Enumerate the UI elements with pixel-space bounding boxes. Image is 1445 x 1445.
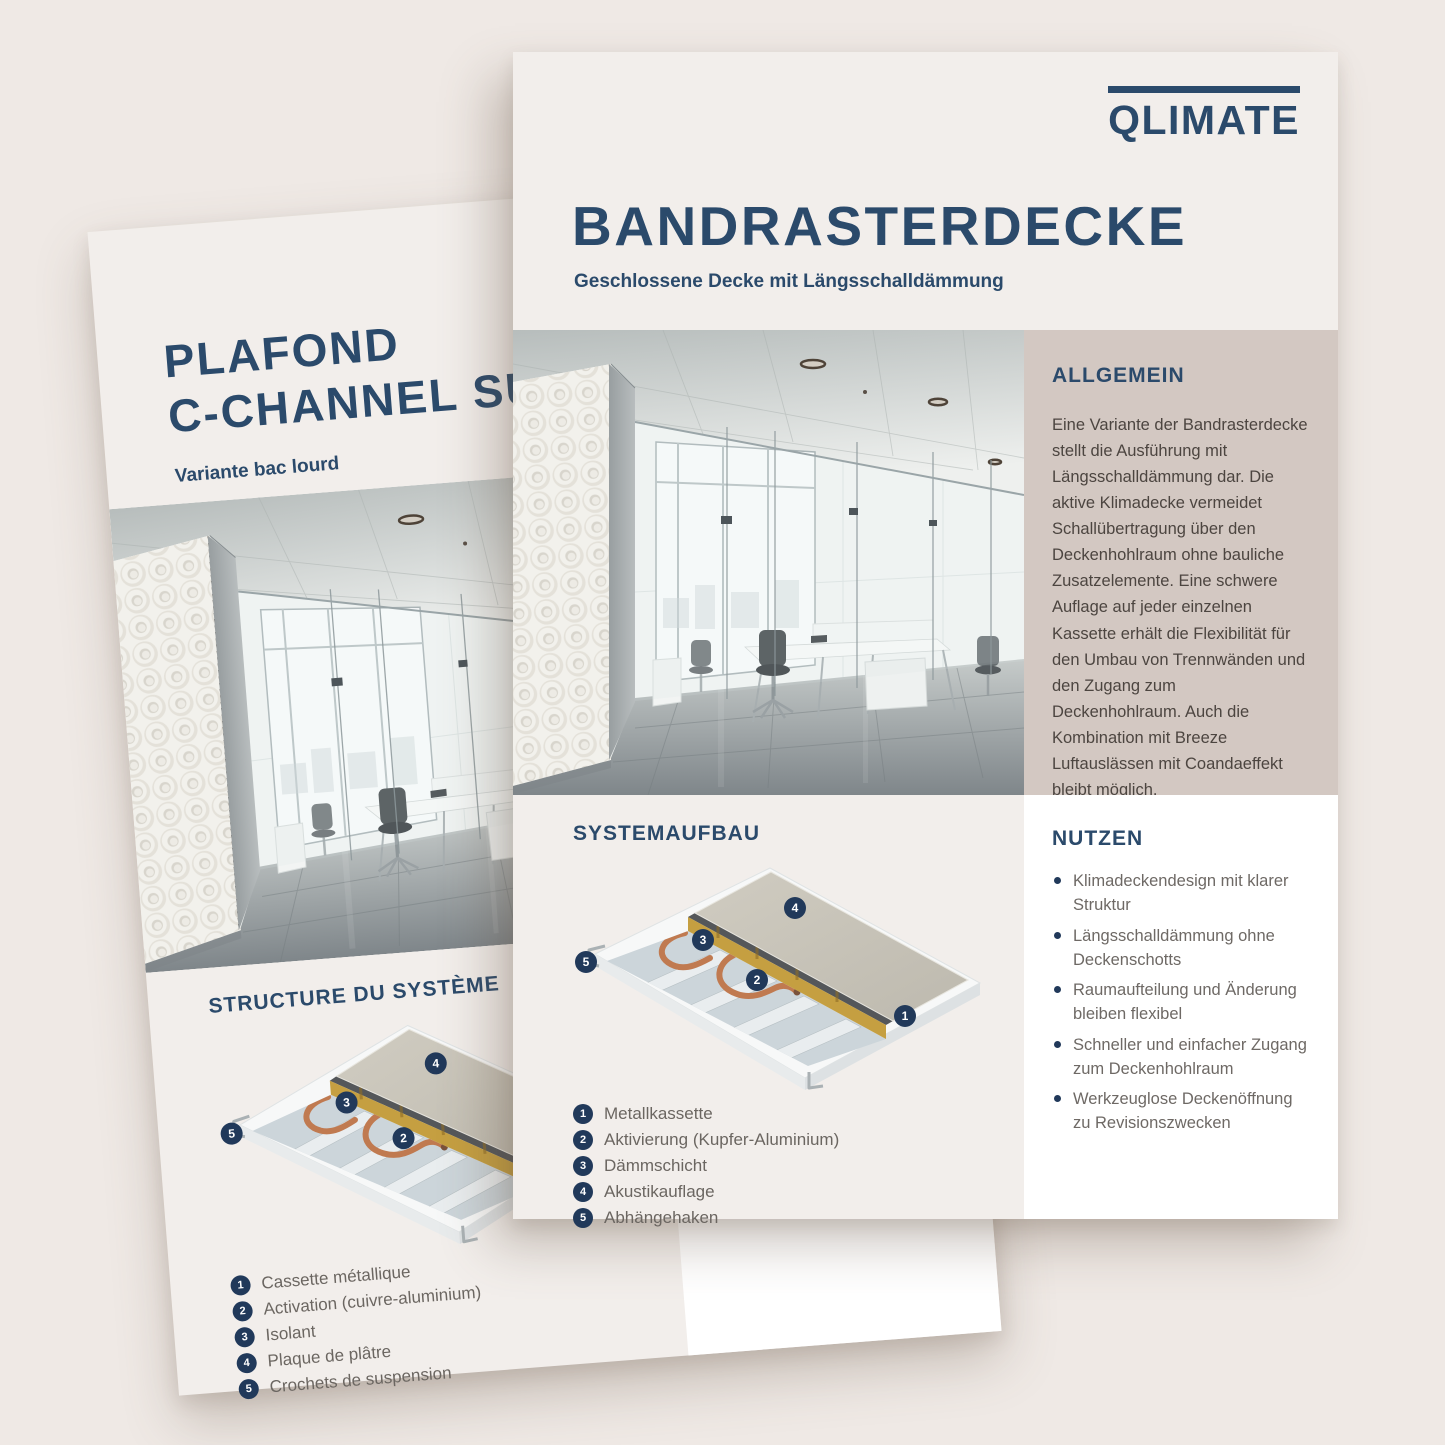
system-diagram bbox=[565, 858, 1015, 1098]
nutzen-list: Klimadeckendesign mit klarer Struktur Lä… bbox=[1052, 869, 1314, 1136]
number-badge: 1 bbox=[573, 1104, 593, 1124]
number-badge: 3 bbox=[234, 1326, 256, 1348]
canvas-background: PLAFOND C-CHANNEL SU Variante bac lourd … bbox=[0, 0, 1445, 1445]
bullet-item: Raumaufteilung und Änderung bleiben flex… bbox=[1052, 978, 1314, 1027]
number-badge: 2 bbox=[232, 1301, 254, 1323]
bullet-item: Klimadeckendesign mit klarer Struktur bbox=[1052, 869, 1314, 918]
allgemein-body: Eine Variante der Bandrasterdecke stellt… bbox=[1052, 412, 1308, 803]
datasheet-page-front: QLIMATE BANDRASTERDECKE Geschlossene Dec… bbox=[513, 52, 1338, 1219]
list-item-label: Plaque de plâtre bbox=[267, 1342, 392, 1372]
number-badge: 4 bbox=[573, 1182, 593, 1202]
systemaufbau-heading: SYSTEMAUFBAU bbox=[573, 822, 1024, 846]
list-item: 3Dämmschicht bbox=[573, 1156, 1024, 1176]
qlimate-logo-text: QLIMATE bbox=[1108, 100, 1300, 141]
list-item-label: Aktivierung (Kupfer-Aluminium) bbox=[604, 1130, 839, 1150]
nutzen-heading: NUTZEN bbox=[1052, 827, 1314, 851]
bullet-item: Längsschalldämmung ohne Deckenschotts bbox=[1052, 924, 1314, 973]
nutzen-section: NUTZEN Klimadeckendesign mit klarer Stru… bbox=[1024, 795, 1338, 1219]
list-item-label: Dämmschicht bbox=[604, 1156, 707, 1176]
list-item-label: Isolant bbox=[265, 1322, 317, 1346]
number-badge: 5 bbox=[573, 1208, 593, 1228]
bullet-item: Schneller und einfacher Zugang zum Decke… bbox=[1052, 1033, 1314, 1082]
qlimate-logo: QLIMATE bbox=[1108, 86, 1300, 141]
page-title-back: PLAFOND C-CHANNEL SU bbox=[162, 305, 543, 444]
list-item: 2Aktivierung (Kupfer-Aluminium) bbox=[573, 1130, 1024, 1150]
office-photo bbox=[513, 330, 1024, 795]
list-item: 1Metallkassette bbox=[573, 1104, 1024, 1124]
bullet-item: Werkzeuglose Deckenöffnung zu Revisionsz… bbox=[1052, 1087, 1314, 1136]
number-badge: 4 bbox=[236, 1352, 258, 1374]
list-item: 4Akustikauflage bbox=[573, 1182, 1024, 1202]
list-item-label: Abhängehaken bbox=[604, 1208, 718, 1228]
list-item-label: Metallkassette bbox=[604, 1104, 713, 1124]
list-item: 5Abhängehaken bbox=[573, 1208, 1024, 1228]
page-title: BANDRASTERDECKE bbox=[572, 199, 1187, 254]
allgemein-section: ALLGEMEIN Eine Variante der Bandrasterde… bbox=[1024, 330, 1338, 795]
systemaufbau-section: SYSTEMAUFBAU 1Metallkassette 2Aktivierun… bbox=[513, 795, 1024, 1219]
bottom-band: SYSTEMAUFBAU 1Metallkassette 2Aktivierun… bbox=[513, 795, 1338, 1219]
number-badge: 3 bbox=[573, 1156, 593, 1176]
allgemein-heading: ALLGEMEIN bbox=[1052, 364, 1308, 388]
number-badge: 1 bbox=[230, 1275, 252, 1297]
photo-band: ALLGEMEIN Eine Variante der Bandrasterde… bbox=[513, 330, 1338, 795]
number-badge: 2 bbox=[573, 1130, 593, 1150]
number-badge: 5 bbox=[238, 1378, 260, 1400]
page-subtitle-back: Variante bac lourd bbox=[174, 453, 340, 488]
systemaufbau-legend: 1Metallkassette 2Aktivierung (Kupfer-Alu… bbox=[573, 1104, 1024, 1228]
page-subtitle: Geschlossene Decke mit Längsschalldämmun… bbox=[574, 271, 1004, 293]
list-item-label: Akustikauflage bbox=[604, 1182, 715, 1202]
